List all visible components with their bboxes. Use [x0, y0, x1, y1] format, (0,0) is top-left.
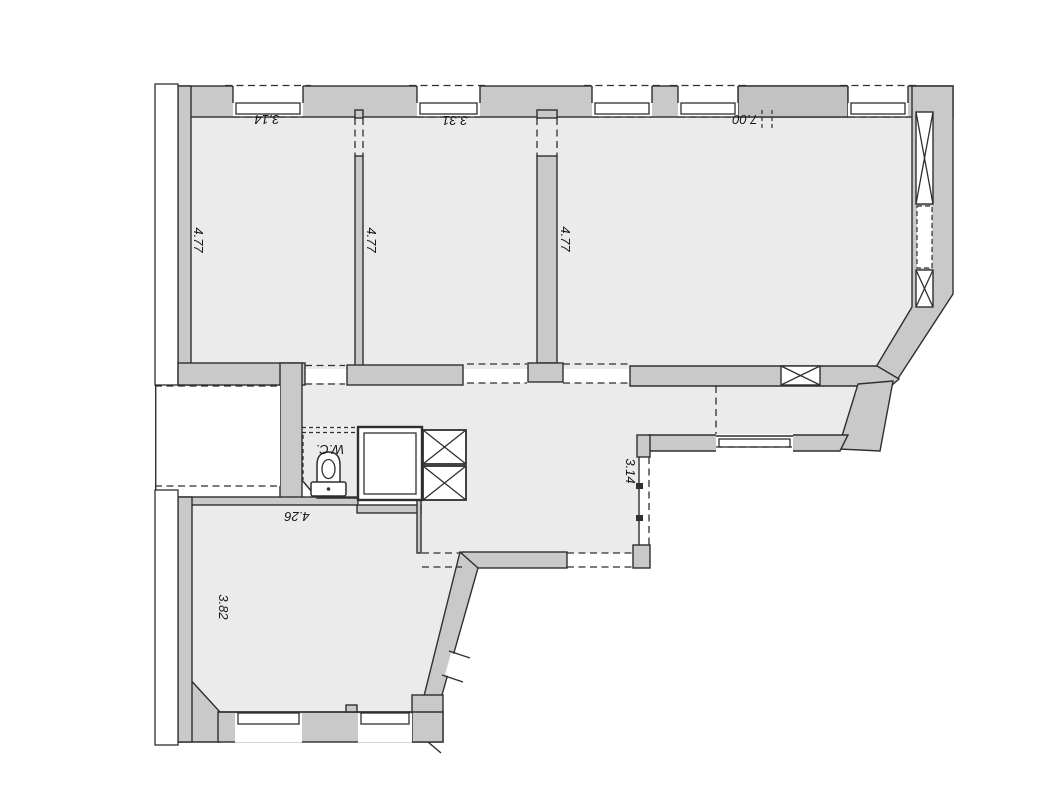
dim-room3-width: 7.00 — [732, 112, 758, 127]
entrance-void — [156, 385, 280, 490]
elevator-shaft — [358, 427, 422, 500]
dim-room3-depth: 4.77 — [558, 226, 573, 252]
divider-room1-room2 — [355, 156, 363, 366]
room-bottom-top-wall-b — [357, 505, 421, 513]
divider-room2-room3-footing — [528, 363, 563, 382]
duct-dashed-box — [917, 206, 932, 268]
divider-room2-room3 — [537, 156, 557, 363]
dim-room2-width: 3.31 — [442, 113, 467, 128]
exterior-corner-tick — [428, 742, 441, 753]
divider-room2-room3-stub — [537, 110, 557, 118]
chimney-shaft-icon — [916, 112, 933, 204]
dim-room2-depth: 4.77 — [364, 227, 379, 253]
passage-bottom-wall — [462, 552, 567, 568]
vent-shaft-icon — [781, 366, 820, 385]
floor-plan-canvas: 3.14 3.31 7.00 4.77 4.77 4.77 3.14 4.26 … — [0, 0, 1063, 804]
vent-shaft-icon — [423, 430, 466, 464]
window-room3-left — [592, 85, 652, 117]
dim-room4-width: 4.26 — [284, 509, 310, 524]
terrace-strip-top-left — [155, 84, 178, 385]
glass-wall-pier-bottom — [633, 545, 650, 568]
wall-left-exterior-bottom — [178, 497, 192, 742]
chimney-shaft-icon — [916, 270, 933, 307]
glass-wall-pier-top — [637, 435, 650, 457]
window-room4-left — [235, 713, 302, 743]
dim-room1-width: 3.14 — [254, 112, 279, 127]
dim-room1-depth: 4.77 — [191, 227, 206, 253]
corridor-top-wall-mid — [347, 365, 463, 385]
dim-passage-width: 3.14 — [623, 458, 638, 483]
window-room4-right — [358, 713, 412, 743]
room-bottom-wall-bump — [346, 705, 357, 712]
window-room3-right — [848, 85, 908, 117]
room-bottom-south-east-pier — [412, 695, 443, 742]
window-hall — [716, 434, 793, 452]
floor-plan-drawing: 3.14 3.31 7.00 4.77 4.77 4.77 3.14 4.26 … — [0, 0, 1063, 804]
terrace-strip-bottom-left — [155, 490, 178, 745]
window-room3-mid — [678, 85, 738, 117]
corridor-left-wall — [280, 363, 302, 500]
divider-room1-room2-stub — [355, 110, 363, 118]
window-room2 — [417, 85, 480, 117]
vent-shaft-icon — [423, 466, 466, 500]
dim-room4-depth: 3.82 — [216, 594, 231, 620]
window-room1 — [233, 85, 303, 117]
wc-label: W.C. — [316, 442, 344, 457]
hall-top-wall — [630, 366, 899, 386]
passage-west-wall — [417, 500, 421, 553]
wall-left-exterior-top — [178, 86, 191, 385]
